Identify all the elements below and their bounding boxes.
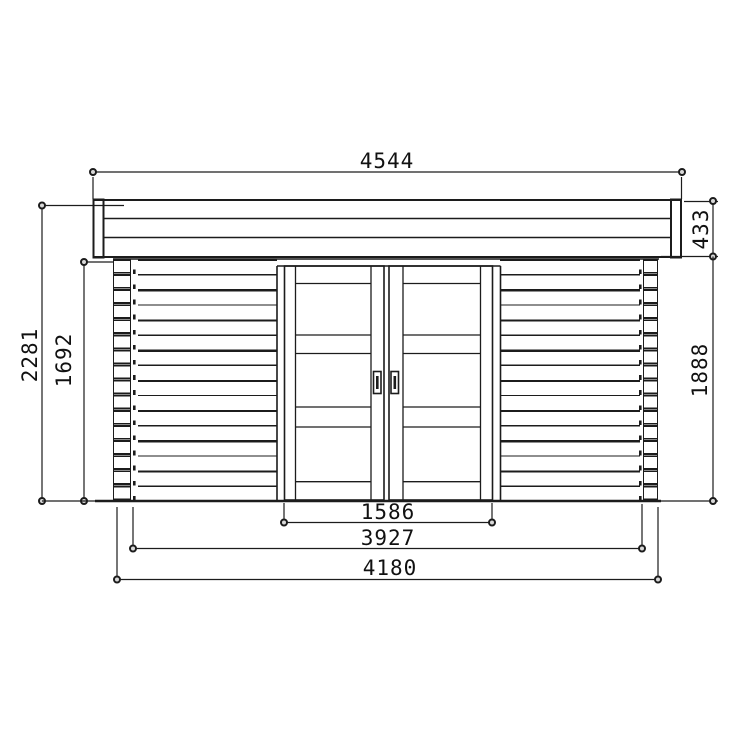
door-handle-right: [391, 372, 399, 394]
handle-slot-right: [394, 376, 397, 389]
dimension-roof-width: 4544: [90, 149, 685, 199]
dim-label-fascia-height: 433: [689, 209, 713, 250]
dim-label-wall-outer-width: 4180: [363, 556, 418, 580]
door-handle-left: [374, 372, 382, 394]
dim-endpoint-dot: [81, 259, 87, 265]
door-stile-lines: [296, 266, 481, 500]
door-leaf-right: [389, 266, 493, 500]
dim-endpoint-dot: [90, 169, 96, 175]
elevation-drawing: 4544 433 2281 1692 1888: [0, 0, 750, 750]
dim-endpoint-dot: [710, 198, 716, 204]
dim-label-wall-log-height: 1692: [52, 333, 76, 388]
dimension-wall-log-height: 1692: [52, 259, 113, 504]
dim-endpoint-dot: [114, 577, 120, 583]
fascia-band: [94, 200, 682, 257]
fascia-board-lines: [104, 219, 672, 238]
fascia-endcap-right: [671, 200, 681, 258]
double-door: [277, 266, 501, 500]
dim-endpoint-dot: [489, 520, 495, 526]
dim-endpoint-dot: [39, 203, 45, 209]
door-rails-left: [296, 284, 372, 482]
dim-endpoint-dot: [710, 498, 716, 504]
drawing-linework: 4544 433 2281 1692 1888: [0, 0, 750, 750]
dimension-fascia-height: 433: [661, 198, 718, 260]
dim-endpoint-dot: [655, 577, 661, 583]
dim-label-wall-height-right: 1888: [688, 343, 712, 398]
dim-line-1692: [84, 262, 113, 501]
dim-label-roof-width: 4544: [360, 149, 415, 173]
dim-endpoint-dot: [281, 520, 287, 526]
roof-fascia: [94, 200, 682, 258]
dim-label-door-width: 1586: [361, 500, 416, 524]
dimension-door-width: 1586: [281, 500, 495, 526]
handle-slot-left: [376, 376, 379, 389]
dim-endpoint-dot: [130, 546, 136, 552]
dimension-wall-height-right: 1888: [661, 257, 718, 505]
door-leaf-left: [285, 266, 385, 500]
door-rails-right: [403, 284, 481, 482]
fascia-endcap-left: [94, 200, 104, 258]
dim-endpoint-dot: [679, 169, 685, 175]
dim-label-overall-height: 2281: [18, 328, 42, 383]
dim-label-wall-inner-width: 3927: [361, 526, 416, 550]
dim-endpoint-dot: [639, 546, 645, 552]
dim-line-4544: [93, 172, 682, 199]
